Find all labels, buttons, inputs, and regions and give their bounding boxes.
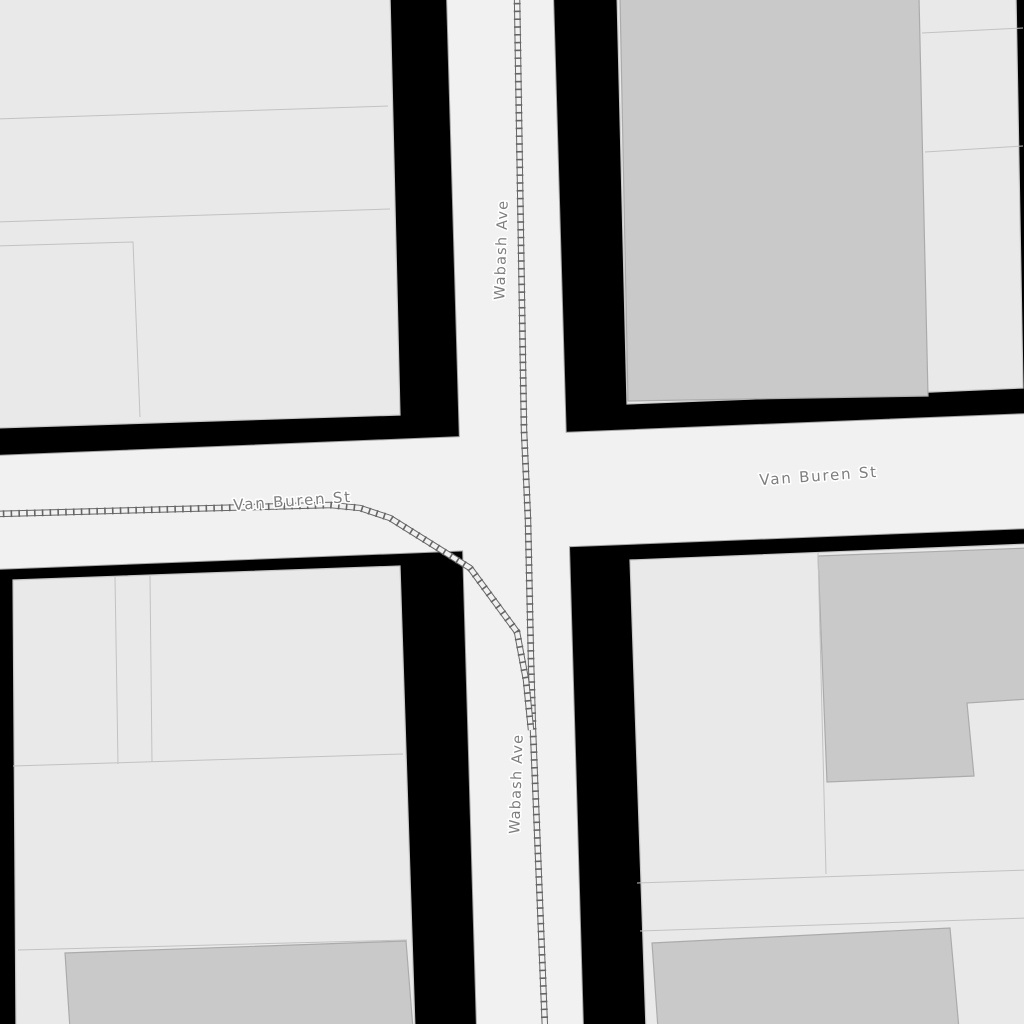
building-dark-southwest: [65, 941, 413, 1024]
building-dark-northeast: [620, 0, 928, 401]
building-light-northwest: [0, 0, 400, 428]
map-canvas[interactable]: Wabash AveWabash AveVan Buren StVan Bure…: [0, 0, 1024, 1024]
map-render-layer: Wabash AveWabash AveVan Buren StVan Bure…: [0, 0, 1024, 1024]
building-dark-southeast-bottom: [652, 928, 959, 1024]
